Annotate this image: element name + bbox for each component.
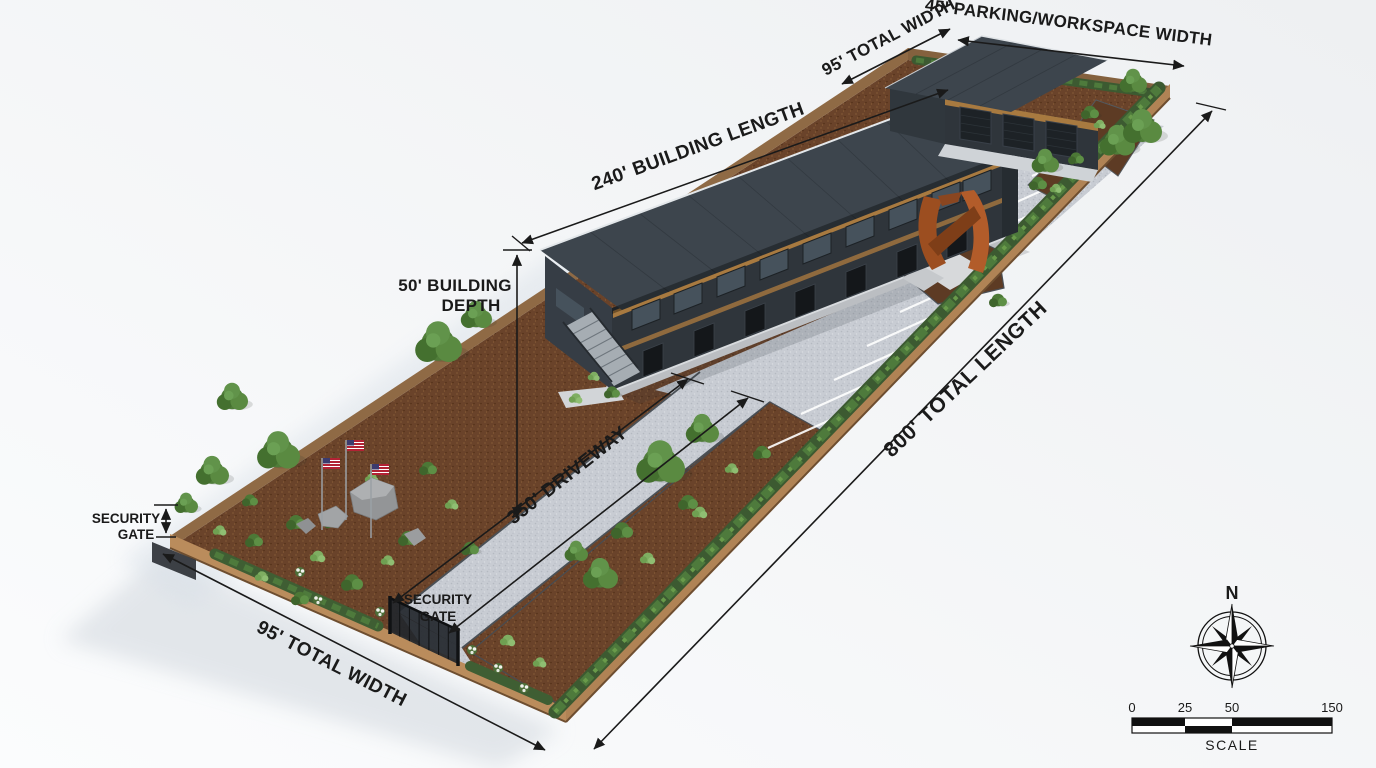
flower-cluster <box>313 595 323 605</box>
dim-label-building-depth-2: DEPTH <box>441 296 500 315</box>
scale-tick-25: 25 <box>1178 700 1192 715</box>
label-security-gate-left-2: GATE <box>118 527 155 542</box>
scale-tick-50: 50 <box>1225 700 1239 715</box>
scale-tick-0: 0 <box>1128 700 1135 715</box>
label-security-gate-mid-1: SECURITY <box>404 592 472 607</box>
scale-label: SCALE <box>1205 737 1258 753</box>
flower-cluster <box>493 663 503 673</box>
flower-cluster <box>467 645 477 655</box>
label-security-gate-left-1: SECURITY <box>92 511 160 526</box>
scale-tick-150: 150 <box>1321 700 1343 715</box>
dim-label-building-depth-1: 50' BUILDING <box>398 276 511 295</box>
compass-north-label: N <box>1226 583 1239 603</box>
site-plan-rendering: 240' BUILDING LENGTH 95' TOTAL WIDTH 45'… <box>0 0 1376 768</box>
flower-cluster <box>375 607 385 617</box>
us-flag <box>347 440 364 451</box>
us-flag <box>323 458 340 469</box>
label-security-gate-mid-2: GATE <box>420 609 457 624</box>
scale-bar-segments <box>1132 718 1332 733</box>
site-plan-canvas: 240' BUILDING LENGTH 95' TOTAL WIDTH 45'… <box>0 0 1376 768</box>
us-flag <box>372 464 389 475</box>
flower-cluster <box>295 567 305 577</box>
flower-cluster <box>519 683 529 693</box>
